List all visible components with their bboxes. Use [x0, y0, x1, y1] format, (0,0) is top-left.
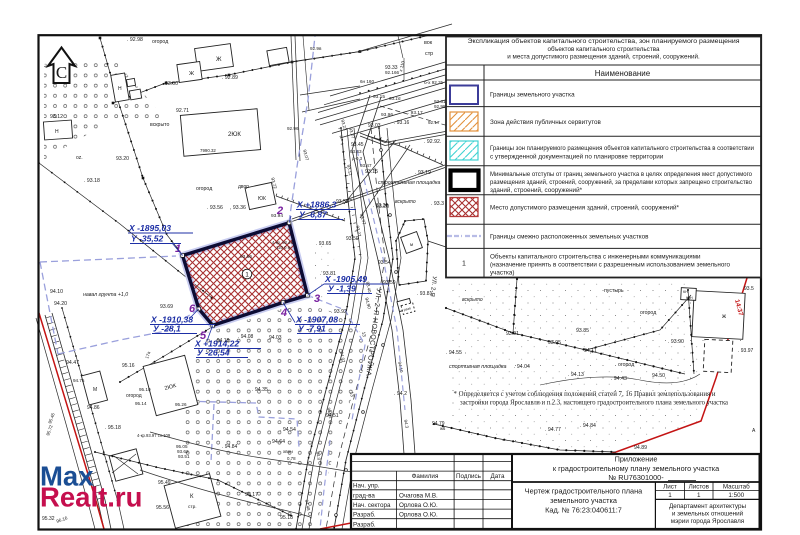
svg-text:Минимальные отступы от границ: Минимальные отступы от границ земельного… [490, 171, 752, 178]
svg-text:93.69: 93.69 [160, 304, 173, 310]
svg-text:Департамент архитектуры: Департамент архитектуры [669, 503, 747, 510]
svg-text:92.17: 92.17 [428, 120, 440, 125]
svg-text:93.12: 93.12 [50, 114, 63, 120]
svg-text:95.56: 95.56 [156, 505, 169, 511]
svg-text:стр: стр [425, 51, 433, 57]
svg-text:94.64: 94.64 [272, 439, 285, 445]
svg-text:Х -1895,03: Х -1895,03 [128, 223, 171, 233]
svg-text:95.14: 95.14 [135, 401, 147, 406]
svg-text:6н 160: 6н 160 [360, 79, 374, 84]
svg-text:У -1,39: У -1,39 [328, 284, 356, 294]
svg-text:. 92.98: . 92.98 [127, 37, 143, 43]
svg-text:. 94.77: . 94.77 [545, 427, 561, 433]
svg-text:93.59: 93.59 [383, 280, 396, 286]
svg-text:Объекты капитального строитель: Объекты капитального строительства с инж… [490, 253, 701, 261]
svg-text:У -6,87: У -6,87 [299, 210, 328, 220]
svg-text:Разраб.: Разраб. [353, 520, 376, 528]
svg-text:Очагова М.В.: Очагова М.В. [399, 492, 438, 499]
svg-text:1:500: 1:500 [728, 492, 744, 499]
svg-text:Чертеж градостроительного план: Чертеж градостроительного плана [525, 487, 643, 496]
svg-text:95.49: 95.49 [158, 480, 171, 486]
svg-text:92.9в: 92.9в [310, 46, 322, 51]
svg-text:огород: огород [196, 186, 212, 192]
svg-text:двор: двор [238, 184, 249, 190]
svg-text:. 94.2: . 94.2 [394, 391, 407, 397]
svg-text:. 93.19: . 93.19 [415, 170, 431, 176]
svg-text:1: 1 [462, 261, 466, 268]
svg-text:. 92.20: . 92.20 [373, 203, 389, 209]
svg-text:93.94: 93.94 [271, 213, 283, 219]
svg-text:92.98: 92.98 [434, 104, 446, 109]
svg-text:град-ва: град-ва [353, 492, 375, 499]
svg-text:ж: ж [722, 314, 726, 320]
svg-text:стр.: стр. [188, 505, 197, 510]
svg-text:93.16: 93.16 [389, 96, 401, 101]
svg-text:1: 1 [668, 492, 672, 499]
svg-text:Место допустимого размещения з: Место допустимого размещения зданий, стр… [490, 204, 679, 212]
svg-text:Дата: Дата [491, 473, 505, 480]
svg-text:зданий, строений, сооружений*: зданий, строений, сооружений* [490, 186, 583, 194]
svg-text:Лист: Лист [663, 483, 677, 490]
svg-text:Границы земельного участка: Границы земельного участка [490, 92, 575, 99]
svg-text:Нач. упр.: Нач. упр. [353, 483, 380, 490]
svg-text:Границы смежно расположенных з: Границы смежно расположенных земельных у… [490, 234, 649, 241]
svg-text:Орлова О.Ю.: Орлова О.Ю. [399, 502, 438, 509]
svg-text:К: К [190, 494, 194, 500]
svg-text:93.51: 93.51 [178, 454, 190, 459]
svg-text:. 93.18: . 93.18 [84, 178, 100, 184]
svg-text:92.96: 92.96 [287, 126, 299, 131]
svg-text:Приложение: Приложение [615, 455, 658, 464]
svg-text:7990.32: 7990.32 [200, 148, 216, 153]
svg-text:земельного участка: земельного участка [550, 496, 618, 505]
svg-text:95.10: 95.10 [139, 387, 151, 392]
svg-text:Разраб.: Разраб. [353, 511, 376, 519]
svg-text:№ RU76301000-: № RU76301000- [608, 473, 664, 482]
svg-text:вскрыто: вскрыто [395, 199, 416, 205]
svg-text:. 93.56: . 93.56 [207, 205, 223, 211]
svg-text:Нач. сектора: Нач. сектора [353, 502, 391, 509]
svg-text:2ЮК: 2ЮК [228, 132, 241, 138]
svg-text:93.96: 93.96 [381, 112, 393, 118]
svg-text:огород: огород [640, 310, 656, 316]
svg-text:. 93.92: . 93.92 [331, 309, 347, 315]
svg-text:. 93.90: . 93.90 [668, 339, 684, 345]
svg-text:93.20: 93.20 [116, 156, 129, 162]
svg-text:93.5: 93.5 [744, 286, 754, 292]
svg-text:, 93.36: , 93.36 [230, 205, 246, 211]
svg-text:. 93.16: . 93.16 [394, 120, 410, 126]
svg-text:объектов капитального строител: объектов капитального строительства [548, 45, 660, 53]
svg-text:94.86: 94.86 [87, 405, 100, 411]
svg-text:. 93.65: . 93.65 [316, 241, 332, 247]
svg-text:Наименование: Наименование [595, 69, 651, 78]
svg-text:. 94.84: . 94.84 [222, 444, 238, 450]
svg-text:. 92.89: . 92.89 [222, 75, 238, 81]
svg-text:Листов: Листов [689, 483, 710, 490]
svg-text:94.47: 94.47 [66, 360, 79, 366]
svg-text:хвон: хвон [283, 449, 293, 454]
svg-text:размещения зданий, строений, с: размещения зданий, строений, сооружений,… [490, 178, 752, 186]
svg-text:к градостроительному плану зем: к градостроительному плану земельного уч… [553, 464, 720, 473]
svg-text:вскрыто: вскрыто [150, 122, 169, 128]
svg-text:. 94.35: . 94.35 [252, 387, 268, 393]
svg-text:Экспликация объектов капитальн: Экспликация объектов капитального строит… [468, 37, 740, 45]
svg-text:У -28,1: У -28,1 [153, 324, 181, 334]
svg-text:Х +1886,3: Х +1886,3 [296, 200, 337, 210]
svg-text:93.91: 93.91 [506, 331, 519, 337]
svg-text:Границы зон планируемого разме: Границы зон планируемого размещения объе… [490, 144, 754, 152]
svg-text:спортивная площадка: спортивная площадка [449, 364, 506, 370]
svg-text:Масштаб: Масштаб [723, 482, 750, 490]
svg-text:строительная площадка: строительная площадка [378, 180, 440, 186]
svg-text:ж6: ж6 [440, 426, 446, 431]
svg-text:С: С [56, 63, 67, 82]
svg-text:. 94.55: . 94.55 [446, 350, 462, 356]
svg-text:4-кр.93.97 сп.109: 4-кр.93.97 сп.109 [137, 433, 171, 438]
svg-text:120,0 м: 120,0 м [276, 245, 291, 250]
svg-text:95.17: 95.17 [245, 492, 258, 498]
svg-text:94.20: 94.20 [54, 301, 67, 307]
svg-text:Зона действия публичных сервит: Зона действия публичных сервитутов [490, 118, 602, 126]
svg-text:93.15: 93.15 [365, 169, 378, 175]
svg-text:М: М [93, 387, 97, 393]
svg-text:пустырь: пустырь [604, 288, 624, 294]
svg-text:93.95: 93.95 [548, 340, 561, 346]
svg-text:участка): участка) [490, 270, 514, 277]
svg-text:и земельных отношений: и земельных отношений [672, 510, 744, 518]
svg-text:0,78: 0,78 [287, 456, 296, 461]
svg-text:1: 1 [245, 271, 249, 278]
svg-text:навал грунта +1,0: навал грунта +1,0 [83, 292, 128, 298]
svg-text:вок: вок [424, 40, 433, 46]
svg-text:94.03: 94.03 [269, 335, 282, 341]
svg-text:У -26,54: У -26,54 [197, 348, 230, 358]
svg-text:Realt.ru: Realt.ru [40, 482, 142, 513]
svg-text:93.45: 93.45 [351, 142, 364, 148]
svg-text:. 92.92.: . 92.92. [424, 139, 441, 145]
svg-text:93.86: 93.86 [240, 254, 252, 260]
svg-text:1: 1 [697, 492, 701, 499]
svg-text:оz.: оz. [76, 155, 83, 161]
svg-text:94.89: 94.89 [634, 445, 647, 451]
svg-text:. 94.13: . 94.13 [568, 372, 584, 378]
svg-text:Кад. № 76:23:040611:7: Кад. № 76:23:040611:7 [545, 506, 622, 515]
svg-text:огород: огород [126, 393, 142, 399]
svg-text:93.43: 93.43 [350, 149, 362, 154]
svg-text:огород: огород [152, 39, 168, 45]
svg-text:вскрыто: вскрыто [462, 297, 483, 303]
svg-text:93.00: 93.00 [165, 81, 178, 87]
svg-text:м: м [410, 242, 413, 247]
svg-text:95.32: 95.32 [42, 516, 55, 522]
svg-text:мэрии города Ярославля: мэрии города Ярославля [671, 518, 744, 525]
svg-text:94.10: 94.10 [50, 289, 63, 295]
svg-text:92.71: 92.71 [176, 108, 189, 114]
svg-text:У -7,91: У -7,91 [298, 324, 326, 334]
svg-text:Ж: Ж [216, 57, 222, 63]
svg-text:* Определяется с учетом соблюд: * Определяется с учетом соблюдения полож… [454, 390, 716, 398]
svg-text:3: 3 [314, 293, 320, 305]
svg-text:Орлова О.Ю.: Орлова О.Ю. [399, 512, 438, 519]
svg-text:ЮК: ЮК [258, 196, 266, 202]
svg-text:застройки города Ярославля и п: застройки города Ярославля и п.2.3, наст… [460, 399, 729, 407]
svg-text:93.54: 93.54 [378, 260, 391, 266]
svg-text:95.16: 95.16 [122, 363, 135, 369]
svg-text:. 94.18: . 94.18 [214, 338, 230, 344]
svg-text:93.52: 93.52 [336, 199, 349, 205]
svg-text:. 94.43: . 94.43 [611, 376, 627, 382]
svg-text:Ж: Ж [189, 71, 194, 77]
svg-text:Y -35,52: Y -35,52 [131, 234, 164, 244]
svg-text:94.7в: 94.7в [73, 378, 85, 383]
svg-text:. 93.81: . 93.81 [320, 271, 336, 277]
svg-text:б-х 92.31: б-х 92.31 [424, 80, 444, 85]
svg-text:. 94.08: . 94.08 [238, 334, 254, 340]
svg-text:. 93.97: . 93.97 [738, 348, 754, 354]
svg-text:94.11: 94.11 [584, 348, 597, 354]
svg-text:93.15: 93.15 [373, 94, 385, 100]
svg-text:с утвержденной документацией п: с утвержденной документацией по планиров… [490, 153, 664, 161]
svg-text:95.26: 95.26 [175, 402, 187, 407]
svg-text:4: 4 [280, 307, 287, 319]
svg-text:огород: огород [618, 362, 634, 368]
svg-text:Фамилия: Фамилия [412, 473, 439, 480]
svg-text:д-0,3: д-0,3 [352, 156, 363, 161]
svg-text:Н: Н [118, 86, 122, 92]
svg-text:. 94.84: . 94.84 [580, 423, 596, 429]
svg-text:94.50: 94.50 [652, 373, 665, 379]
svg-text:93.85: 93.85 [576, 328, 589, 334]
svg-text:93.47: 93.47 [360, 163, 372, 168]
svg-text:. 93.3: . 93.3 [431, 201, 444, 207]
svg-text:95.18: 95.18 [280, 515, 293, 521]
svg-text:Подпись: Подпись [456, 473, 482, 480]
svg-text:. 94.04: . 94.04 [514, 364, 530, 370]
svg-text:. 94.54: . 94.54 [280, 427, 296, 433]
svg-text:Н: Н [55, 129, 59, 135]
svg-text:(назначение принять в соответс: (назначение принять в соответствии с раз… [490, 262, 731, 269]
svg-text:. 93.17: . 93.17 [408, 110, 423, 116]
svg-text:93.03: 93.03 [368, 123, 381, 129]
svg-text:и места допустимого размещения: и места допустимого размещения зданий, с… [507, 53, 700, 61]
svg-text:. 95.18: . 95.18 [105, 425, 121, 431]
